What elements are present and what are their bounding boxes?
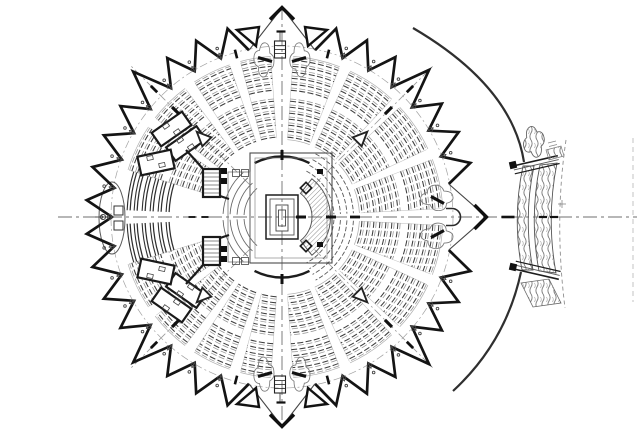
scanned-plan-page: [0, 0, 640, 436]
auditorium-plan-drawing: [0, 0, 640, 436]
